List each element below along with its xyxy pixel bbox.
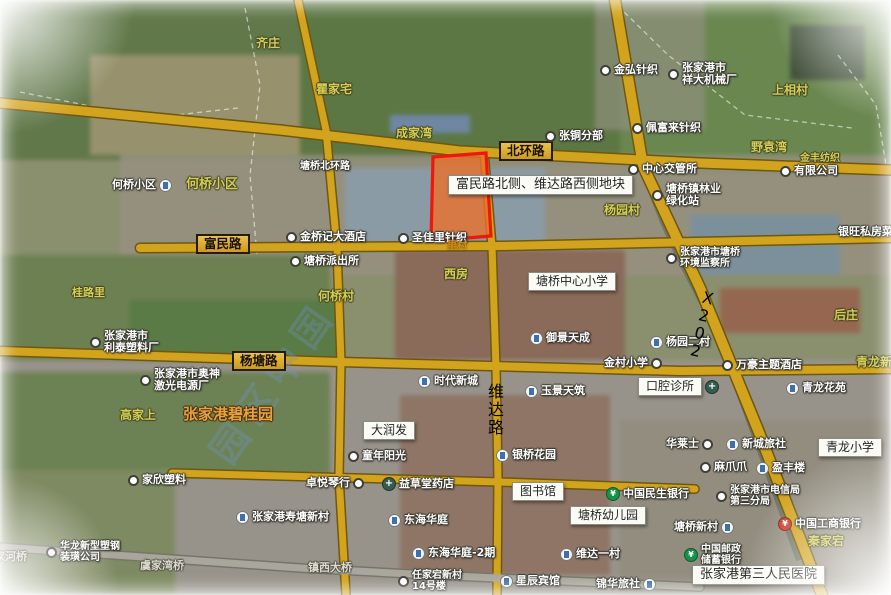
label-text: 家河桥 [0, 551, 27, 563]
label-text: 张家港第三人民医院 [692, 565, 825, 585]
label-text: 中心交管所 [642, 163, 697, 175]
label-text: 塘桥中心小学 [528, 272, 616, 291]
area-label-biguiyuan: 张家港碧桂园 [183, 406, 273, 423]
poi-jincun-primary[interactable]: 金村小学 [604, 357, 662, 369]
poi-jinhong-knitting[interactable]: 金弘针织 [600, 64, 658, 76]
label-text: 金弘针织 [614, 64, 658, 76]
village-label-heqiao-estate: 何桥小区 [186, 178, 238, 192]
cross-icon: + [382, 477, 396, 491]
bldg-icon [786, 382, 799, 395]
label-text: 青龙新村 [856, 356, 891, 369]
label-text: 金桥记大酒店 [300, 231, 366, 243]
bldg-icon [726, 438, 739, 451]
poi-psbc-bank[interactable]: ¥中国邮政储蓄银行 [684, 544, 741, 566]
label-text: 塘桥北环路 [300, 161, 350, 172]
label-text: 富民路 [196, 234, 250, 254]
label-text: 玉景天筑 [541, 385, 585, 397]
label-text: 高家上 [120, 409, 156, 422]
label-text: 张家港碧桂园 [183, 406, 273, 423]
label-text: 桂路里 [72, 287, 105, 299]
bldg-icon [756, 462, 769, 475]
label-text: 维达路 [483, 379, 509, 441]
poi-yujing-tianzhu[interactable]: 玉景天筑 [525, 385, 585, 398]
dot-icon [398, 233, 409, 244]
poi-company[interactable]: 有限公司 [780, 165, 838, 177]
village-label-gaojiashang: 高家上 [120, 409, 156, 422]
label-text: 口腔诊所 [638, 377, 702, 396]
poi-police-station[interactable]: 塘桥派出所 [290, 255, 359, 267]
red-icon: ¥ [778, 517, 792, 531]
poi-icbc-bank[interactable]: ¥中国工商银行 [778, 517, 861, 531]
bldg-icon [418, 375, 431, 388]
label-text: 杨园村 [604, 204, 640, 217]
label-text: 何桥小区 [186, 178, 238, 192]
label-text: 北环路 [499, 141, 553, 161]
poi-xingchen-hotel[interactable]: 星辰宾馆 [500, 575, 560, 588]
poi-jiaxin-plastics[interactable]: 家欣塑料 [128, 474, 186, 486]
label-text: 塘桥派出所 [304, 255, 359, 267]
label-text: 富民路北侧、维达路西侧地块 [448, 175, 633, 195]
label-text: 东海华庭 [404, 514, 448, 526]
bridge-label-jiahe: 家河桥 [0, 551, 27, 563]
label-text: 盈丰楼 [772, 462, 805, 474]
poi-library[interactable]: 图书馆 [512, 482, 564, 501]
dot-icon [666, 253, 677, 264]
poi-wanhao-hotel[interactable]: 万豪主题酒店 [722, 359, 802, 371]
label-text: 华龙新型塑钢装璜公司 [60, 541, 120, 563]
dot-icon [286, 232, 297, 243]
label-text: 任家宕新村14号楼 [412, 570, 462, 592]
label-text: 星辰宾馆 [516, 575, 560, 587]
poi-zhuoyue-shop[interactable]: 卓悦琴行 [306, 477, 364, 489]
road-label-fuminlu: 富民路 [196, 234, 250, 254]
label-text: 何桥村 [318, 290, 354, 303]
green-icon: ¥ [684, 548, 698, 562]
dot-icon [46, 547, 57, 558]
label-text: 西房 [444, 268, 468, 281]
dot-icon [290, 256, 301, 267]
dot-icon [398, 576, 409, 587]
dot-icon [651, 358, 662, 369]
poi-mazhuazhua[interactable]: 麻爪爪 [700, 461, 747, 473]
label-text: 万豪主题酒店 [736, 359, 802, 371]
label-text: 东海华庭-2期 [428, 547, 495, 559]
label-text: 镇西大桥 [308, 562, 352, 574]
poi-env-inspection[interactable]: 张家港市塘桥环境监察所 [666, 247, 740, 269]
bldg-icon [530, 332, 543, 345]
dot-icon [140, 375, 151, 386]
dot-icon [353, 478, 364, 489]
label-text: 张家港市利泰塑料厂 [104, 330, 159, 354]
dot-icon [702, 439, 713, 450]
label-text: 家欣塑料 [142, 474, 186, 486]
label-text: 时代新城 [434, 375, 478, 387]
poi-telecom-bureau[interactable]: 张家港市电信局第三分局 [716, 485, 800, 507]
dot-icon [632, 123, 643, 134]
label-text: 后庄 [834, 309, 858, 322]
label-text: 张家港寿塘新村 [252, 511, 329, 523]
bldg-icon [525, 385, 538, 398]
poi-tangqiao-kindergarten[interactable]: 塘桥幼儿园 [570, 506, 646, 525]
label-text: 麻爪爪 [714, 461, 747, 473]
bridge-label-zhenxi: 镇西大桥 [308, 562, 352, 574]
village-label-guiluli: 桂路里 [72, 287, 105, 299]
dot-icon [348, 451, 359, 462]
poi-tangqiao-central-primary[interactable]: 塘桥中心小学 [528, 272, 616, 291]
village-label-xifang: 西房 [444, 268, 468, 281]
poi-forestry-station[interactable]: 塘桥镇林业绿化站 [652, 183, 721, 207]
label-text: 金丰纺织 [800, 153, 840, 164]
label-text: 大润发 [363, 421, 415, 440]
label-text: 卓悦琴行 [306, 477, 350, 489]
poi-donghai-huating[interactable]: 东海华庭 [388, 514, 448, 527]
village-label-houzhuang: 后庄 [834, 309, 858, 322]
label-text: 张家港市奥神激光电源厂 [154, 368, 220, 392]
road-label-x202: X202 [680, 283, 723, 366]
bldg-icon [721, 521, 734, 534]
poi-donghai-huating-2[interactable]: 东海华庭-2期 [412, 547, 495, 560]
label-text: 上相村 [772, 84, 808, 97]
label-text: X202 [680, 283, 723, 366]
label-text: 金村小学 [604, 357, 648, 369]
label-text: 虞家湾桥 [140, 560, 184, 572]
road-label-yangtanglu: 杨塘路 [232, 351, 286, 371]
dot-icon [128, 475, 139, 486]
dot-icon [628, 164, 639, 175]
village-label-qujiazhai: 瞿家宅 [316, 83, 352, 96]
village-label-qinjiadang: 秦家宕 [808, 535, 844, 548]
label-text: 童年阳光 [362, 450, 406, 462]
poi-minsheng-bank[interactable]: ¥中国民生银行 [606, 487, 689, 501]
poi-tangqiao-xincun[interactable]: 塘桥新村 [674, 521, 734, 534]
dot-icon [668, 69, 679, 80]
poi-weida-yicun[interactable]: 维达一村 [560, 548, 620, 561]
label-text: 维达一村 [576, 548, 620, 560]
poi-dental-clinic[interactable]: 口腔诊所+ [638, 377, 719, 396]
village-label-shangxiang: 上相村 [772, 84, 808, 97]
bldg-icon [650, 336, 663, 349]
dot-icon [600, 65, 611, 76]
poi-heqiao-estate[interactable]: 何桥小区 [112, 179, 172, 192]
poi-qinglong-huayuan[interactable]: 青龙花苑 [786, 382, 846, 395]
road-label-beihuanlu: 北环路 [499, 141, 553, 161]
village-label-qinglong-xincun: 青龙新村 [856, 356, 891, 369]
parcel-info-label[interactable]: 富民路北侧、维达路西侧地块 [448, 175, 633, 195]
label-text: 齐庄 [256, 37, 280, 50]
label-text: 益草堂药店 [399, 478, 454, 490]
poi-xiangda-machinery[interactable]: 张家港市祥大机械厂 [668, 62, 737, 86]
bldg-icon [560, 548, 573, 561]
label-text: 中国民生银行 [623, 488, 689, 500]
poi-traffic-station[interactable]: 中心交管所 [628, 163, 697, 175]
poi-yinqiao-garden[interactable]: 银桥花园 [496, 449, 556, 462]
cross-icon: + [705, 380, 719, 394]
label-text: 新城旅社 [742, 438, 786, 450]
road-label-weidalu: 维达路 [483, 379, 509, 441]
poi-tongnian-yangguang[interactable]: 童年阳光 [348, 450, 406, 462]
poi-renjiadang-xincun[interactable]: 任家宕新村14号楼 [398, 570, 462, 592]
bldg-icon [412, 547, 425, 560]
village-label-heqiaocun: 何桥村 [318, 290, 354, 303]
poi-zhangtong-branch[interactable]: 张铜分部 [545, 130, 603, 142]
label-text: 中国工商银行 [795, 518, 861, 530]
poi-qinglong-primary[interactable]: 青龙小学 [818, 438, 882, 457]
dot-icon [722, 360, 733, 371]
bldg-icon [643, 578, 656, 591]
label-text: 银桥花园 [512, 449, 556, 461]
road-name-tangqiao-beihuanlu[interactable]: 塘桥北环路 [300, 161, 350, 172]
village-label-yeyuanwan: 野袁湾 [751, 141, 787, 154]
label-text: 御景天成 [546, 332, 590, 344]
label-text: 里村 [447, 241, 467, 252]
label-text: 有限公司 [794, 165, 838, 177]
village-label-qizhuang: 齐庄 [256, 37, 280, 50]
label-text: 瞿家宅 [316, 83, 352, 96]
poi-shidai-xincheng[interactable]: 时代新城 [418, 375, 478, 388]
green-icon: ¥ [606, 487, 620, 501]
poi-rt-mart[interactable]: 大润发 [363, 421, 415, 440]
bridge-label-yujiawan: 虞家湾桥 [140, 560, 184, 572]
poi-yicaotang-pharmacy[interactable]: +益草堂药店 [382, 477, 454, 491]
label-text: 图书馆 [512, 482, 564, 501]
label-text: 塘桥幼儿园 [570, 506, 646, 525]
label-text: 佩富来针织 [646, 122, 701, 134]
poi-yingfenglou[interactable]: 盈丰楼 [756, 462, 805, 475]
label-text: 华莱士 [666, 438, 699, 450]
map-labels: 齐庄瞿家宅成家湾北环路张铜分部金弘针织张家港市祥大机械厂上相村佩富来针织野袁湾金… [0, 0, 891, 595]
dot-icon [780, 166, 791, 177]
dot-icon [90, 337, 101, 348]
poi-yujing-tiancheng[interactable]: 御景天成 [530, 332, 590, 345]
label-text: 杨塘路 [232, 351, 286, 371]
poi-wallace[interactable]: 华莱士 [666, 438, 713, 450]
label-text: 张家港市电信局第三分局 [730, 485, 800, 507]
bldg-icon [500, 575, 513, 588]
poi-litai-plastics[interactable]: 张家港市利泰塑料厂 [90, 330, 159, 354]
poi-yinwang-restaurant[interactable]: 银旺私房菜 [838, 226, 891, 238]
dot-icon [652, 190, 663, 201]
village-fragment: 里村 [447, 241, 467, 252]
label-text: 青龙花苑 [802, 382, 846, 394]
poi-peifulai-knitting[interactable]: 佩富来针织 [632, 122, 701, 134]
poi-third-peoples-hospital[interactable]: 张家港第三人民医院 [692, 565, 825, 585]
village-label-chengjiawan: 成家湾 [396, 127, 432, 140]
label-text: 何桥小区 [112, 179, 156, 191]
label-text: 张家港市祥大机械厂 [682, 62, 737, 86]
poi-shoutang-xincun[interactable]: 张家港寿塘新村 [236, 511, 329, 524]
poi-jinhua-hostel[interactable]: 锦华旅社 [596, 578, 656, 591]
label-text: 锦华旅社 [596, 578, 640, 590]
label-text: 成家湾 [396, 127, 432, 140]
poi-aoshen-laser[interactable]: 张家港市奥神激光电源厂 [140, 368, 220, 392]
label-text: 秦家宕 [808, 535, 844, 548]
dot-icon [716, 491, 727, 502]
dot-icon [700, 462, 711, 473]
village-label-yangyuan: 杨园村 [604, 204, 640, 217]
label-text: 张铜分部 [559, 130, 603, 142]
label-text: 塘桥镇林业绿化站 [666, 183, 721, 207]
label-text: 野袁湾 [751, 141, 787, 154]
label-text: 青龙小学 [818, 438, 882, 457]
dot-icon [545, 131, 556, 142]
village-label-jinfeng: 金丰纺织 [800, 153, 840, 164]
label-text: 塘桥新村 [674, 521, 718, 533]
bldg-icon [496, 449, 509, 462]
poi-hualong-plastics[interactable]: 华龙新型塑钢装璜公司 [46, 541, 120, 563]
bldg-icon [236, 511, 249, 524]
label-text: 中国邮政储蓄银行 [701, 544, 741, 566]
satellite-map: 园区中国 齐庄瞿家宅成家湾北环路张铜分部金弘针织张家港市祥大机械厂上相村佩富来针… [0, 0, 891, 595]
bldg-icon [388, 514, 401, 527]
poi-hotel-jinqiaoji[interactable]: 金桥记大酒店 [286, 231, 366, 243]
label-text: 银旺私房菜 [838, 226, 891, 238]
poi-xincheng-hostel[interactable]: 新城旅社 [726, 438, 786, 451]
label-text: 张家港市塘桥环境监察所 [680, 247, 740, 269]
bldg-icon [159, 179, 172, 192]
